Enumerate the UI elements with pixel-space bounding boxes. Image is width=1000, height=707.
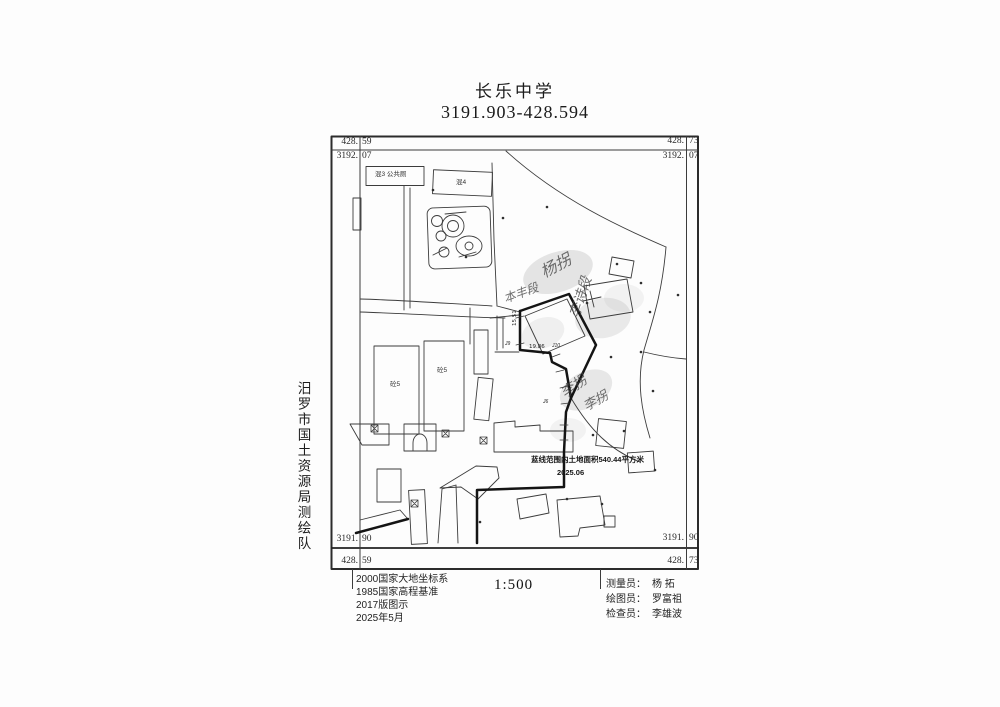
- map-drawing: [330, 135, 700, 570]
- coord-top-right-n-dec: 07: [689, 152, 699, 162]
- building-label: 混3 公共厕: [375, 172, 406, 179]
- sheet-number: 3191.903-428.594: [330, 103, 700, 121]
- staff-row: 检查员： 李雄波: [606, 605, 682, 620]
- datum-line: 2000国家大地坐标系: [356, 575, 448, 585]
- survey-point-label: J10: [552, 344, 560, 349]
- coord-top-left-e-dec: 59: [362, 138, 372, 148]
- coord-bottom-left-n-int: 3191.: [326, 535, 358, 545]
- coord-bottom-right-n-int: 3191.: [648, 534, 684, 544]
- building-label: 砼5: [390, 382, 400, 389]
- area-note-date: 2025.06: [557, 469, 584, 477]
- map-scale: 1:500: [494, 578, 533, 593]
- coord-top-right-e-dec: 73: [689, 137, 699, 147]
- dimension-label: 19.86: [529, 345, 545, 351]
- scanned-survey-sheet: 长乐中学 3191.903-428.594 汨罗市国土资源局测绘队: [0, 0, 1000, 707]
- coord-top-left-n-dec: 07: [362, 152, 372, 162]
- org-name-vertical: 汨罗市国土资源局测绘队: [296, 381, 310, 552]
- staff-role: 检查员：: [606, 605, 646, 620]
- buildings: [350, 167, 655, 545]
- staff-role: 绘图员：: [606, 590, 646, 605]
- pencil-smudges: [517, 242, 644, 442]
- staff-name: 罗富祖: [652, 590, 682, 605]
- datum-line: 2017版图示: [356, 601, 408, 611]
- coord-bottom-left-e-dec: 59: [362, 557, 372, 567]
- coord-top-right-e-int: 428.: [652, 137, 684, 147]
- staff-name: 李雄波: [652, 605, 682, 620]
- coord-bottom-right-e-dec: 73: [689, 557, 699, 567]
- ground-symbols: [371, 425, 487, 507]
- datum-line: 2025年5月: [356, 614, 404, 624]
- page-title: 长乐中学: [330, 83, 700, 100]
- garden: [427, 206, 492, 269]
- survey-point-label: J9: [505, 342, 510, 347]
- datum-line: 1985国家高程基准: [356, 588, 438, 598]
- coord-bottom-left-n-dec: 90: [362, 535, 372, 545]
- coord-top-right-n-int: 3192.: [648, 152, 684, 162]
- building-label: 砼5: [437, 368, 447, 375]
- building-label: 混4: [456, 180, 466, 187]
- area-note: 蓝线范围内土地面积540.44平方米: [531, 456, 644, 464]
- staff-name: 杨 拓: [652, 575, 675, 590]
- dimension-label: 15.51: [513, 310, 519, 326]
- survey-point-label: J6: [543, 400, 548, 405]
- staff-row: 测量员： 杨 拓: [606, 575, 675, 590]
- coord-bottom-right-n-dec: 90: [689, 534, 699, 544]
- coord-top-left-e-int: 428.: [330, 138, 358, 148]
- coord-bottom-right-e-int: 428.: [652, 557, 684, 567]
- coord-top-left-n-int: 3192.: [326, 152, 358, 162]
- staff-role: 测量员：: [606, 575, 646, 590]
- coord-bottom-left-e-int: 428.: [330, 557, 358, 567]
- staff-row: 绘图员： 罗富祖: [606, 590, 682, 605]
